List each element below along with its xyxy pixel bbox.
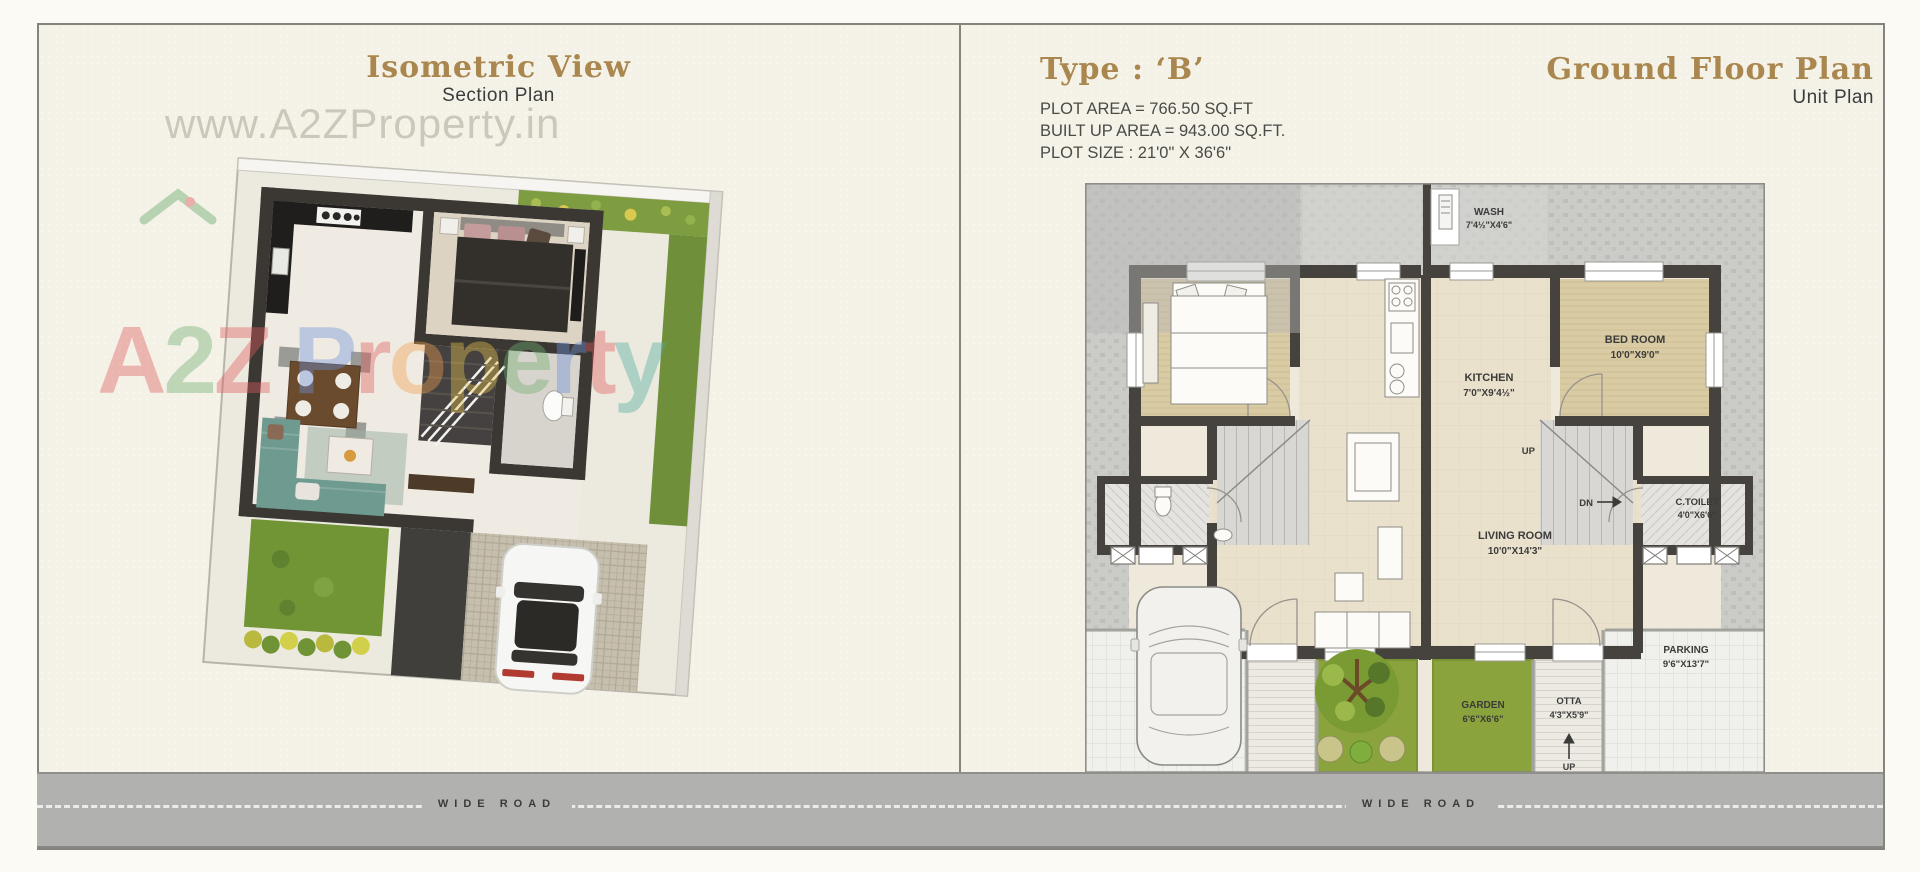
watermark-url: www.A2ZProperty.in [165,100,560,148]
logo-letter: r [550,307,584,414]
entry-up-label: UP [1563,762,1576,772]
room-label-parking: PARKING [1663,645,1709,656]
plot-size-line: PLOT SIZE : 21'0" X 36'6" [1040,142,1285,164]
stairs-dn-label: DN [1579,498,1593,509]
left-panel-header: Isometric View Section Plan [37,50,960,107]
room-dims-wash: 7'4½"X4'6" [1466,220,1512,230]
left-panel-title: Isometric View [37,50,960,85]
right-panel-header: Ground Floor Plan Unit Plan [1546,52,1874,109]
stairs-up-label: UP [1522,446,1536,457]
room-label-otta: OTTA [1556,696,1581,707]
plot-area-line: PLOT AREA = 766.50 SQ.FT [1040,98,1285,120]
iso-path [391,527,471,680]
room-label-kitchen: KITCHEN [1465,372,1514,384]
road-center-dash-line [37,805,1883,808]
room-dims-kitchen: 7'0"X9'4½" [1463,388,1515,399]
logo-letter: p [444,307,500,414]
plan-car [1131,587,1247,765]
room-dims-parking: 9'6"X13'7" [1663,659,1709,670]
road-label-left: WIDE ROAD [422,798,572,810]
wide-road-strip: WIDE ROAD WIDE ROAD [37,772,1883,848]
built-up-area-line: BUILT UP AREA = 943.00 SQ.FT. [1040,120,1285,142]
logo-letter: r [354,307,388,414]
logo-letter: 2 [163,307,213,414]
room-dims-ctoilet: 4'0"X6'6" [1678,510,1717,520]
logo-letter: P [293,307,354,414]
unit-right [1391,183,1765,773]
room-label-ctoilet: C.TOILET [1675,497,1718,508]
ground-floor-plan-svg: WASH 7'4½"X4'6" BED ROOM 10'0"X9'0" KITC… [1085,183,1765,773]
watermark-logo: A2Z Property [6,196,664,526]
watermark-logo-roof-icon [138,186,218,226]
brochure-page: Isometric View Section Plan [0,0,1920,872]
logo-letter: e [500,307,550,414]
room-label-living: LIVING ROOM [1478,530,1552,542]
logo-letter: A [97,307,163,414]
room-label-garden: GARDEN [1461,700,1504,711]
logo-letter [269,307,293,414]
unit-type-title: Type : ‘B’ [1040,52,1205,87]
panel-divider [959,25,961,772]
logo-letter: Z [214,307,270,414]
room-dims-garden: 6'6"X6'6" [1463,714,1504,725]
iso-car [489,542,605,695]
room-label-bedroom: BED ROOM [1605,334,1666,346]
road-label-right: WIDE ROAD [1346,798,1496,810]
plan-subtitle: Unit Plan [1546,87,1874,109]
room-dims-bedroom: 10'0"X9'0" [1611,350,1660,361]
logo-letter: y [614,307,664,414]
room-dims-otta: 4'3"X5'9" [1550,710,1589,720]
logo-letter: o [389,307,445,414]
plan-title: Ground Floor Plan [1546,52,1874,87]
logo-letter: t [585,307,614,414]
room-label-wash: WASH [1474,207,1504,218]
plot-info: PLOT AREA = 766.50 SQ.FT BUILT UP AREA =… [1040,98,1285,164]
room-dims-living: 10'0"X14'3" [1488,546,1543,557]
